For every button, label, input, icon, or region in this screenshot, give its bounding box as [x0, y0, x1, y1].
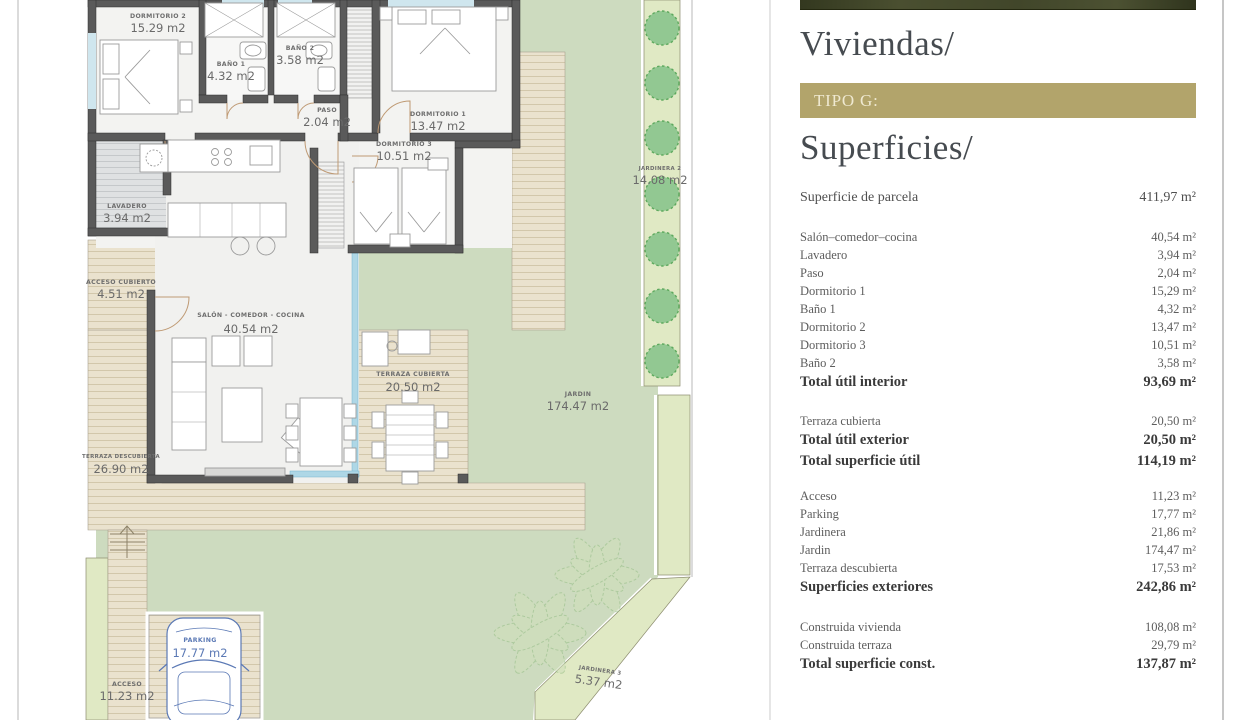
- room-label-dormitorio-3: DORMITORIO 3 10.51 m2: [376, 141, 432, 163]
- brochure-page: DORMITORIO 2 15.29 m2 BAÑO 1 4.32 m2 BAÑ…: [0, 0, 1240, 720]
- interior-areas-section: Salón–comedor–cocina40,54 m² Lavadero3,9…: [800, 228, 1196, 393]
- svg-text:3.58 m2: 3.58 m2: [276, 53, 324, 67]
- row-value: 2,04 m²: [1158, 264, 1196, 282]
- row-label: Dormitorio 1: [800, 282, 866, 300]
- row-label: Acceso: [800, 487, 837, 505]
- type-badge: TIPO G:: [800, 83, 1196, 118]
- row-value: 114,19 m²: [1137, 451, 1196, 472]
- row-value: 13,47 m²: [1151, 318, 1196, 336]
- section-title: Superficies/: [800, 128, 973, 168]
- exterior-covered-section: Terraza cubierta20,50 m² Total útil exte…: [800, 412, 1196, 472]
- parcel-area-row: Superficie de parcela 411,97 m²: [800, 190, 1196, 206]
- car: [159, 618, 249, 720]
- area-row: Dormitorio 310,51 m²: [800, 336, 1196, 354]
- area-row-total: Total útil interior93,69 m²: [800, 372, 1196, 393]
- info-panel: Viviendas/ TIPO G: Superficies/ Superfic…: [800, 0, 1196, 720]
- row-label: Terraza cubierta: [800, 412, 881, 430]
- svg-text:10.51 m2: 10.51 m2: [376, 149, 431, 163]
- svg-text:DORMITORIO 3: DORMITORIO 3: [376, 141, 432, 148]
- svg-text:26.90 m2: 26.90 m2: [93, 462, 148, 476]
- row-value: 21,86 m²: [1151, 523, 1196, 541]
- row-value: 17,77 m²: [1151, 505, 1196, 523]
- area-row-total: Superficies exteriores242,86 m²: [800, 577, 1196, 598]
- row-value: 137,87 m²: [1136, 654, 1196, 675]
- row-label: Jardinera: [800, 523, 846, 541]
- area-row: Dormitorio 213,47 m²: [800, 318, 1196, 336]
- area-row: Construida terraza29,79 m²: [800, 636, 1196, 654]
- svg-text:BAÑO 2: BAÑO 2: [286, 43, 315, 52]
- row-label: Dormitorio 2: [800, 318, 866, 336]
- area-row: Salón–comedor–cocina40,54 m²: [800, 228, 1196, 246]
- svg-text:ACCESO: ACCESO: [112, 681, 142, 688]
- svg-text:JARDINERA 2: JARDINERA 2: [638, 166, 682, 172]
- row-label: Superficie de parcela: [800, 190, 918, 206]
- room-label-jardinera-2: JARDINERA 2 14.08 m2: [632, 166, 687, 187]
- row-value: 174,47 m²: [1145, 541, 1196, 559]
- row-value: 11,23 m²: [1152, 487, 1196, 505]
- row-label: Terraza descubierta: [800, 559, 897, 577]
- row-value: 15,29 m²: [1151, 282, 1196, 300]
- exterior-areas-section: Acceso11,23 m² Parking17,77 m² Jardinera…: [800, 487, 1196, 598]
- room-label-terraza-cubierta: TERRAZA CUBIERTA 20.50 m2: [376, 371, 450, 394]
- floor-plan: DORMITORIO 2 15.29 m2 BAÑO 1 4.32 m2 BAÑ…: [0, 0, 790, 720]
- row-label: Lavadero: [800, 246, 847, 264]
- area-row-total: Total superficie const.137,87 m²: [800, 654, 1196, 675]
- room-label-dormitorio-2: DORMITORIO 2 15.29 m2: [130, 13, 186, 35]
- area-row: Terraza descubierta17,53 m²: [800, 559, 1196, 577]
- area-row: Acceso11,23 m²: [800, 487, 1196, 505]
- svg-text:40.54 m2: 40.54 m2: [223, 322, 278, 336]
- row-value: 40,54 m²: [1151, 228, 1196, 246]
- room-label-dormitorio-1: DORMITORIO 1 13.47 m2: [410, 111, 466, 133]
- row-value: 242,86 m²: [1136, 577, 1196, 598]
- svg-text:ACCESO CUBIERTO: ACCESO CUBIERTO: [86, 279, 156, 286]
- area-row: Lavadero3,94 m²: [800, 246, 1196, 264]
- area-row: Baño 23,58 m²: [800, 354, 1196, 372]
- row-value: 3,94 m²: [1158, 246, 1196, 264]
- row-value: 411,97 m²: [1139, 190, 1196, 206]
- row-value: 93,69 m²: [1143, 372, 1196, 393]
- svg-text:PASO: PASO: [317, 107, 337, 114]
- area-row: Parking17,77 m²: [800, 505, 1196, 523]
- row-value: 29,79 m²: [1151, 636, 1196, 654]
- area-row: Dormitorio 115,29 m²: [800, 282, 1196, 300]
- svg-text:PARKING: PARKING: [183, 637, 216, 644]
- row-label: Jardin: [800, 541, 831, 559]
- row-label: Baño 1: [800, 300, 836, 318]
- row-value: 4,32 m²: [1158, 300, 1196, 318]
- area-row: Jardin174,47 m²: [800, 541, 1196, 559]
- svg-text:DORMITORIO 2: DORMITORIO 2: [130, 13, 186, 20]
- svg-text:3.94 m2: 3.94 m2: [103, 211, 151, 225]
- row-label: Dormitorio 3: [800, 336, 866, 354]
- row-value: 3,58 m²: [1158, 354, 1196, 372]
- row-label: Superficies exteriores: [800, 577, 933, 598]
- header-photo-band: [800, 0, 1196, 10]
- page-title: Viviendas/: [800, 24, 955, 64]
- area-row: Terraza cubierta20,50 m²: [800, 412, 1196, 430]
- row-label: Parking: [800, 505, 839, 523]
- row-label: Total superficie const.: [800, 654, 935, 675]
- area-row: Paso2,04 m²: [800, 264, 1196, 282]
- svg-text:4.32 m2: 4.32 m2: [207, 69, 255, 83]
- row-value: 20,50 m²: [1151, 412, 1196, 430]
- area-row: Baño 14,32 m²: [800, 300, 1196, 318]
- row-value: 20,50 m²: [1143, 430, 1196, 451]
- built-areas-section: Construida vivienda108,08 m² Construida …: [800, 618, 1196, 675]
- svg-text:DORMITORIO 1: DORMITORIO 1: [410, 111, 466, 118]
- svg-text:14.08 m2: 14.08 m2: [632, 173, 687, 187]
- row-label: Baño 2: [800, 354, 836, 372]
- svg-text:SALÓN - COMEDOR - COCINA: SALÓN - COMEDOR - COCINA: [197, 310, 305, 319]
- svg-text:13.47 m2: 13.47 m2: [410, 119, 465, 133]
- svg-text:TERRAZA CUBIERTA: TERRAZA CUBIERTA: [376, 371, 450, 378]
- row-label: Construida terraza: [800, 636, 892, 654]
- row-value: 17,53 m²: [1151, 559, 1196, 577]
- row-label: Paso: [800, 264, 824, 282]
- row-label: Construida vivienda: [800, 618, 901, 636]
- row-value: 108,08 m²: [1145, 618, 1196, 636]
- svg-text:15.29 m2: 15.29 m2: [130, 21, 185, 35]
- row-label: Salón–comedor–cocina: [800, 228, 917, 246]
- svg-text:JARDIN: JARDIN: [564, 391, 592, 398]
- row-label: Total útil exterior: [800, 430, 909, 451]
- svg-text:4.51 m2: 4.51 m2: [97, 287, 145, 301]
- area-row-total: Total útil exterior20,50 m²: [800, 430, 1196, 451]
- row-label: Total superficie útil: [800, 451, 920, 472]
- svg-text:2.04 m2: 2.04 m2: [303, 115, 351, 129]
- svg-text:TERRAZA DESCUBIERTA: TERRAZA DESCUBIERTA: [82, 454, 160, 460]
- svg-text:BAÑO 1: BAÑO 1: [217, 59, 246, 68]
- room-label-lavadero: LAVADERO 3.94 m2: [103, 203, 151, 225]
- page-divider: [1222, 0, 1224, 720]
- area-row: Construida vivienda108,08 m²: [800, 618, 1196, 636]
- area-row: Jardinera21,86 m²: [800, 523, 1196, 541]
- svg-text:11.23 m2: 11.23 m2: [99, 689, 154, 703]
- svg-text:20.50 m2: 20.50 m2: [385, 380, 440, 394]
- row-label: Total útil interior: [800, 372, 907, 393]
- svg-text:174.47 m2: 174.47 m2: [547, 399, 609, 413]
- svg-text:LAVADERO: LAVADERO: [107, 203, 147, 210]
- row-value: 10,51 m²: [1151, 336, 1196, 354]
- area-row-total: Total superficie útil114,19 m²: [800, 451, 1196, 472]
- svg-text:17.77 m2: 17.77 m2: [172, 646, 227, 660]
